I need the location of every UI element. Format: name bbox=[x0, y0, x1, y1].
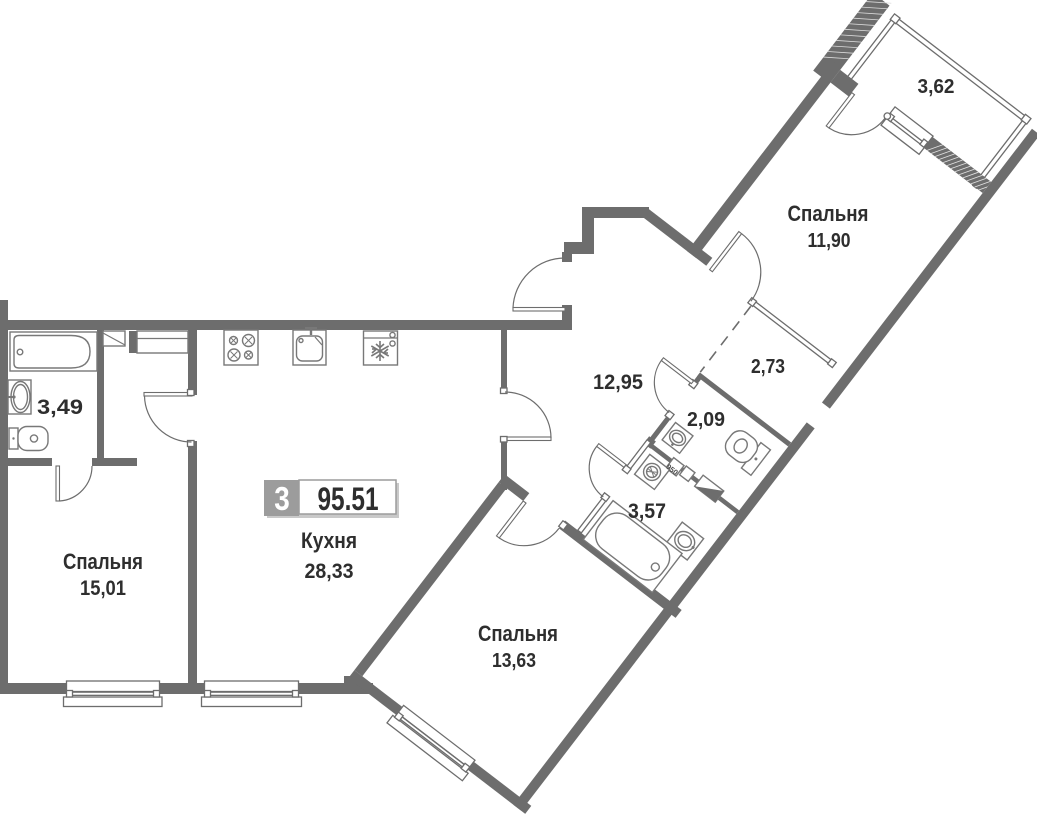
svg-text:Спальня: Спальня bbox=[788, 201, 869, 226]
svg-text:12,95: 12,95 bbox=[593, 371, 643, 394]
svg-text:2,73: 2,73 bbox=[751, 356, 785, 378]
svg-text:Спальня: Спальня bbox=[478, 621, 558, 646]
svg-text:13,63: 13,63 bbox=[492, 650, 536, 672]
svg-text:3,49: 3,49 bbox=[37, 396, 83, 419]
svg-text:28,33: 28,33 bbox=[305, 560, 354, 583]
svg-text:Кухня: Кухня bbox=[301, 528, 357, 553]
svg-text:3: 3 bbox=[274, 480, 290, 517]
svg-text:11,90: 11,90 bbox=[808, 230, 851, 252]
svg-text:15,01: 15,01 bbox=[80, 577, 126, 600]
svg-text:2,09: 2,09 bbox=[687, 409, 725, 431]
svg-text:95.51: 95.51 bbox=[318, 481, 379, 517]
svg-text:Спальня: Спальня bbox=[63, 549, 143, 574]
svg-text:3,57: 3,57 bbox=[628, 500, 666, 523]
svg-text:3,62: 3,62 bbox=[918, 76, 955, 98]
